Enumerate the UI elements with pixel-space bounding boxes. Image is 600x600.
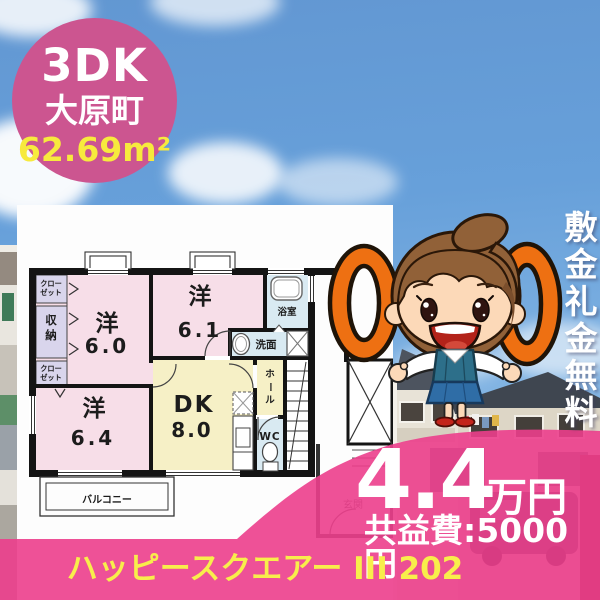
property-badge: 3DK 大原町 62.69m²: [12, 18, 177, 183]
real-estate-ad: 玄関: [0, 0, 600, 600]
property-name: ハッピースクエアー III 202: [0, 554, 530, 585]
badge-area: 62.69m²: [12, 131, 177, 170]
badge-layout-type: 3DK: [12, 39, 177, 92]
ribbon-no-deposit: 敷金礼金無料: [556, 210, 600, 450]
badge-town: 大原町: [12, 92, 177, 131]
rent-amount: 4.4: [355, 440, 494, 522]
